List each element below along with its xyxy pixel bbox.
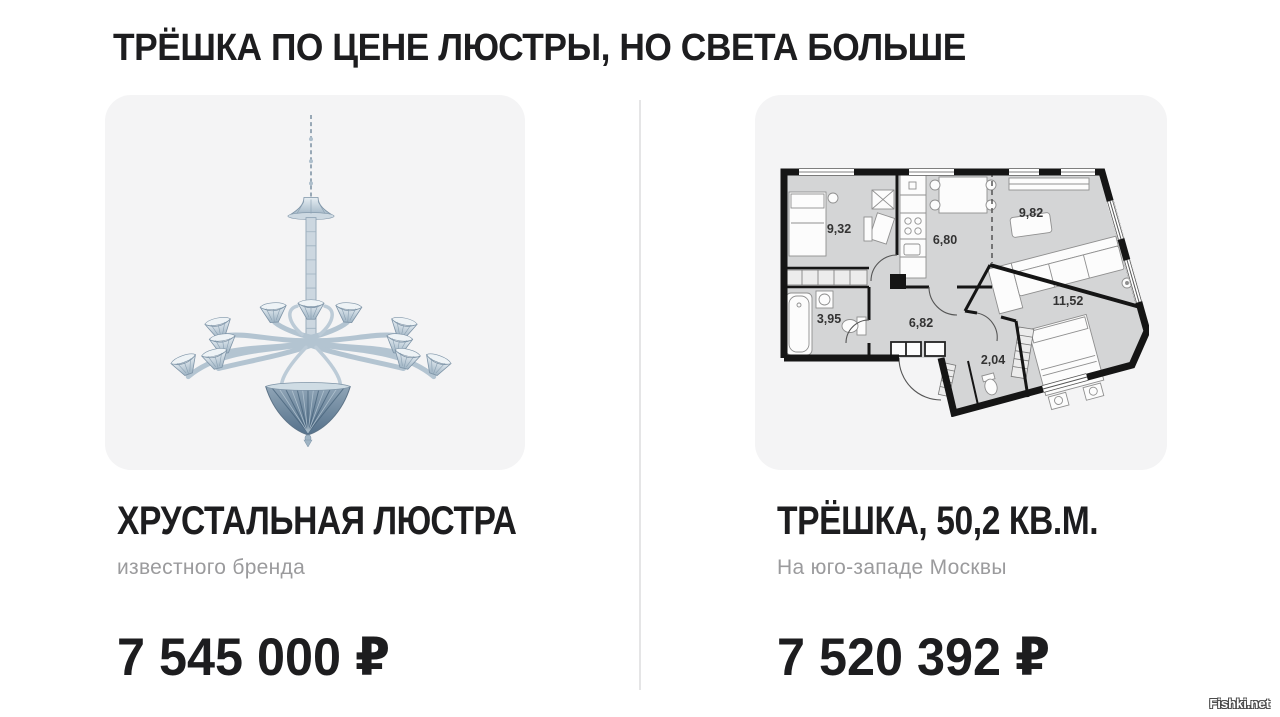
room-area-label: 9,32 xyxy=(827,222,851,236)
room-area-label: 2,04 xyxy=(981,353,1005,367)
washing-machine-icon xyxy=(816,291,833,308)
page-title: ТРЁШКА ПО ЦЕНЕ ЛЮСТРЫ, НО СВЕТА БОЛЬШЕ xyxy=(113,27,966,70)
chandelier-illustration-icon xyxy=(155,111,467,447)
room-area-label: 11,52 xyxy=(1053,294,1084,308)
room-area-label: 3,95 xyxy=(817,312,841,326)
chandelier-stem xyxy=(306,218,316,348)
watermark: Fishki.net xyxy=(1209,696,1270,711)
chandelier-subtitle: известного бренда xyxy=(117,556,305,580)
chandelier-top-bell xyxy=(288,198,334,220)
apartment-title: ТРЁШКА, 50,2 КВ.М. xyxy=(777,499,1098,544)
chandelier-title: ХРУСТАЛЬНАЯ ЛЮСТРА xyxy=(117,499,516,544)
room-area-label: 9,82 xyxy=(1019,206,1043,220)
apartment-price: 7 520 392 ₽ xyxy=(777,627,1050,688)
entrance-door-arc xyxy=(899,358,941,400)
chandelier-bowl xyxy=(266,382,351,447)
tv-console-icon xyxy=(1009,178,1089,190)
apartment-subtitle: На юго-западе Москвы xyxy=(777,556,1007,580)
room-area-label: 6,80 xyxy=(933,233,957,247)
kitchen-counter-icon xyxy=(900,174,926,278)
chandelier-card xyxy=(105,95,525,470)
chandelier-chain xyxy=(309,115,313,200)
apartment-card: 9,32 6,80 9,82 11,52 3,95 6,82 2,04 xyxy=(755,95,1167,470)
dining-table-icon xyxy=(930,177,996,213)
bathtub-icon xyxy=(786,293,812,355)
hallway-cabinet-icon xyxy=(891,342,945,356)
floor-plan-illustration: 9,32 6,80 9,82 11,52 3,95 6,82 2,04 xyxy=(769,165,1149,417)
chandelier-price: 7 545 000 ₽ xyxy=(117,627,390,688)
room-area-label: 6,82 xyxy=(909,316,933,330)
vertical-divider xyxy=(639,100,641,690)
